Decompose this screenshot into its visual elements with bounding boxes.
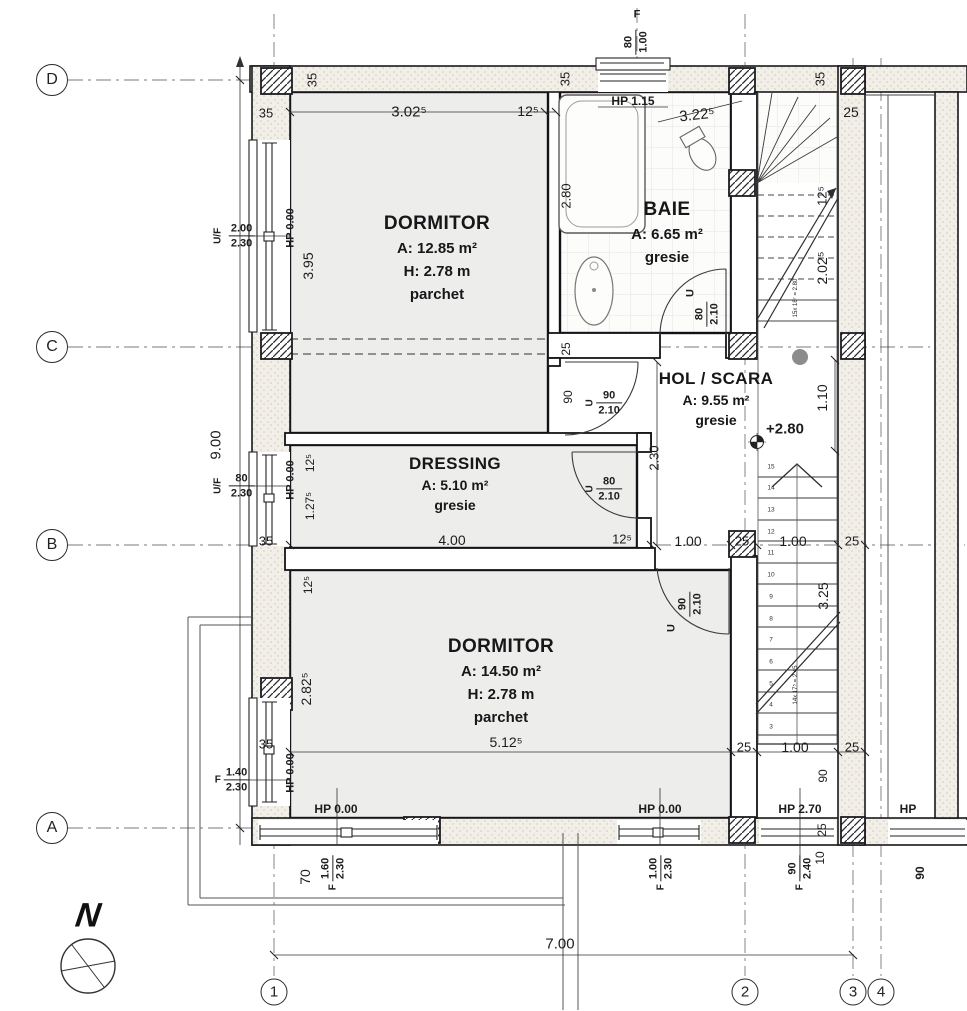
floor-plan: N FHP 1.153.02⁵12⁵3.22⁵3535353525HP 0.00… <box>0 0 967 1011</box>
column-dot <box>792 349 808 365</box>
plan-drawing <box>0 0 967 1011</box>
north-compass-icon <box>61 939 115 993</box>
staircase <box>756 92 840 744</box>
level-marker <box>748 433 766 451</box>
